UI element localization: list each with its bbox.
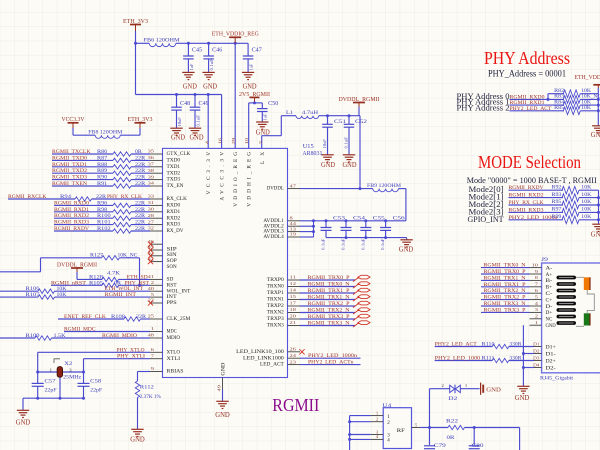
svg-text:C52: C52 [355, 119, 367, 125]
svg-text:NC: NC [546, 317, 553, 323]
svg-text:R98: R98 [97, 207, 108, 213]
svg-text:C54: C54 [353, 215, 365, 221]
svg-text:10K: 10K [581, 192, 591, 198]
svg-text:13: 13 [290, 226, 297, 231]
svg-text:11: 11 [290, 275, 297, 280]
svg-text:C53: C53 [333, 215, 345, 221]
svg-text:GND: GND [203, 82, 217, 90]
svg-text:RGMII_TRX0_P: RGMII_TRX0_P [484, 269, 526, 275]
svg-text:R85: R85 [554, 105, 564, 111]
svg-text:L1: L1 [286, 110, 293, 116]
svg-text:31: 31 [148, 200, 155, 205]
svg-text:RGMII_MDC: RGMII_MDC [64, 327, 96, 333]
svg-text:1.5K: 1.5K [54, 333, 66, 339]
svg-text:20: 20 [290, 314, 297, 319]
svg-text:DVDDL: DVDDL [267, 186, 284, 192]
svg-text:RGMII: RGMII [272, 395, 319, 415]
svg-text:GND: GND [16, 418, 31, 426]
svg-text:TRXP2: TRXP2 [267, 303, 284, 309]
svg-text:1uF: 1uF [189, 63, 194, 71]
svg-text:R102: R102 [97, 226, 111, 232]
svg-text:D1-: D1- [546, 351, 556, 357]
svg-text:R96: R96 [97, 200, 108, 206]
svg-text:PHY2_LED_1000: PHY2_LED_1000 [435, 356, 481, 362]
svg-text:10uF: 10uF [322, 139, 327, 149]
svg-text:25: 25 [148, 314, 155, 319]
svg-text:22pF: 22pF [45, 387, 57, 393]
svg-text:TRXN1: TRXN1 [267, 297, 284, 303]
svg-text:R108: R108 [111, 314, 125, 320]
svg-text:GND: GND [221, 362, 227, 375]
svg-text:R97: R97 [552, 207, 562, 213]
svg-text:44: 44 [290, 221, 297, 226]
svg-text:27: 27 [148, 219, 155, 224]
svg-text:22R: 22R [135, 181, 146, 187]
svg-text:32: 32 [148, 226, 155, 231]
svg-text:C56: C56 [393, 215, 405, 221]
svg-text:PHY Address 2: PHY Address 2 [457, 104, 510, 113]
svg-text:D4: D4 [533, 362, 540, 367]
svg-text:0R: 0R [135, 149, 142, 155]
svg-text:SON: SON [167, 264, 177, 270]
svg-text:47: 47 [290, 183, 297, 188]
svg-text:PHY2_LED_ACT: PHY2_LED_ACT [510, 106, 553, 112]
svg-text:RGMII_RXD3: RGMII_RXD3 [509, 207, 544, 213]
svg-text:23: 23 [290, 359, 297, 364]
svg-text:VDDIO_REG: VDDIO_REG [233, 152, 239, 207]
svg-text:C55: C55 [373, 215, 385, 221]
svg-text:RGMII_TRX1_N: RGMII_TRX1_N [484, 275, 526, 281]
svg-text:MDC: MDC [167, 329, 178, 335]
svg-text:25MHz: 25MHz [63, 374, 82, 380]
svg-text:10: 10 [532, 262, 539, 267]
svg-text:D1: D1 [533, 341, 540, 346]
svg-text:ETH_VDDIO_REG: ETH_VDDIO_REG [212, 31, 260, 37]
svg-text:TRXN2: TRXN2 [267, 310, 284, 316]
svg-text:GND: GND [171, 134, 185, 142]
svg-text:14: 14 [290, 288, 297, 293]
svg-text:22R: 22R [135, 207, 145, 213]
svg-text:C58: C58 [90, 378, 101, 384]
svg-text:R89: R89 [97, 168, 108, 174]
svg-text:RGMII_RXD2: RGMII_RXD2 [509, 193, 544, 199]
svg-text:B+: B+ [546, 285, 553, 291]
svg-text:16: 16 [217, 137, 222, 144]
svg-text:GND: GND [591, 230, 600, 238]
svg-text:GND: GND [546, 323, 556, 329]
svg-text:GND: GND [215, 411, 230, 419]
svg-text:36: 36 [148, 155, 155, 160]
svg-text:X2: X2 [64, 361, 72, 367]
svg-text:26: 26 [290, 347, 297, 352]
svg-text:RGMII_INT: RGMII_INT [105, 292, 137, 298]
svg-text:34: 34 [148, 181, 155, 186]
svg-text:RGMII_TRX2_P: RGMII_TRX2_P [484, 295, 526, 301]
svg-text:12: 12 [290, 281, 297, 286]
svg-text:R99: R99 [552, 214, 562, 220]
svg-text:R95: R95 [552, 199, 562, 205]
svg-text:R109: R109 [26, 333, 40, 339]
svg-text:MDIO: MDIO [167, 335, 181, 341]
svg-text:PPS: PPS [167, 300, 177, 306]
svg-text:RGMII_TRX3_P: RGMII_TRX3_P [484, 307, 526, 313]
svg-text:D2: D2 [448, 396, 457, 402]
svg-text:PHY_XTLO: PHY_XTLO [117, 347, 145, 353]
svg-text:1uF: 1uF [263, 113, 268, 121]
svg-text:PHY_RX_CLK: PHY_RX_CLK [509, 200, 544, 206]
svg-text:1uF: 1uF [249, 63, 254, 71]
svg-text:10K: 10K [581, 207, 591, 213]
svg-text:33: 33 [148, 194, 155, 199]
svg-text:18: 18 [290, 307, 297, 312]
svg-text:RXD1: RXD1 [167, 209, 181, 215]
svg-text:R93: R93 [552, 192, 562, 198]
svg-text:RGMII_TXD2: RGMII_TXD2 [52, 168, 87, 174]
svg-text:RXD2: RXD2 [167, 215, 181, 221]
svg-text:24: 24 [290, 353, 297, 358]
svg-text:RGMII_TXD0: RGMII_TXD0 [52, 155, 87, 161]
svg-text:22R: 22R [135, 155, 146, 161]
svg-text:R111: R111 [482, 356, 495, 362]
svg-text:39: 39 [148, 174, 155, 179]
svg-text:D2-: D2- [546, 365, 556, 371]
svg-text:41: 41 [148, 274, 155, 279]
svg-text:R112: R112 [140, 385, 154, 391]
svg-text:GND: GND [515, 394, 530, 402]
svg-text:C48: C48 [180, 100, 190, 107]
svg-text:10: 10 [244, 137, 249, 144]
svg-text:RGMII_TRX3_N: RGMII_TRX3_N [308, 321, 350, 327]
svg-text:RGMII_TRX2_N: RGMII_TRX2_N [308, 308, 350, 314]
svg-text:RXD3: RXD3 [167, 222, 181, 228]
svg-text:22R: 22R [135, 168, 146, 174]
svg-text:22R: 22R [96, 194, 106, 200]
svg-text:22R: 22R [135, 200, 145, 206]
svg-text:GND: GND [190, 134, 204, 142]
svg-text:GTX_CLK: GTX_CLK [167, 151, 191, 157]
svg-text:A-: A- [546, 265, 553, 271]
svg-text:15: 15 [290, 294, 297, 299]
svg-text:PHY2_LED_1000n: PHY2_LED_1000n [308, 353, 357, 359]
svg-text:RGMII_TRX0_N: RGMII_TRX0_N [308, 282, 350, 288]
svg-text:A+: A+ [546, 272, 553, 278]
svg-text:GND: GND [591, 131, 600, 139]
svg-text:RGMII_RXD0: RGMII_RXD0 [54, 200, 89, 206]
svg-text:22R: 22R [135, 175, 146, 181]
svg-text:10K_NC: 10K_NC [118, 253, 138, 259]
svg-text:TRXN3: TRXN3 [267, 323, 284, 329]
svg-text:22R: 22R [136, 314, 146, 320]
svg-text:330R: 330R [509, 356, 521, 362]
svg-text:R94: R94 [60, 194, 71, 200]
svg-text:0.1uF: 0.1uF [209, 58, 214, 70]
svg-text:LED_LINK10_100: LED_LINK10_100 [236, 349, 284, 355]
svg-text:CLK_25M: CLK_25M [167, 316, 191, 322]
svg-text:RGMII_TRX2_P: RGMII_TRX2_P [308, 301, 350, 307]
svg-text:R100: R100 [97, 213, 111, 219]
svg-text:35: 35 [148, 149, 155, 154]
svg-text:GND: GND [399, 245, 414, 253]
svg-text:RGMII_TXD1: RGMII_TXD1 [52, 162, 87, 168]
svg-text:RGMII_TRX1_P: RGMII_TRX1_P [484, 282, 526, 288]
svg-text:28: 28 [148, 213, 155, 218]
svg-text:10K: 10K [581, 184, 591, 190]
svg-text:29: 29 [231, 137, 236, 144]
svg-text:XTLO: XTLO [167, 349, 181, 355]
svg-text:C+: C+ [546, 297, 553, 303]
svg-text:0.1uF: 0.1uF [341, 238, 346, 250]
svg-text:D2+: D2+ [546, 358, 556, 364]
svg-text:GPIO_INT: GPIO_INT [468, 215, 504, 224]
svg-text:PHY2_LED_ACT: PHY2_LED_ACT [435, 342, 478, 348]
svg-text:FB8 120OHM: FB8 120OHM [88, 130, 122, 136]
svg-text:PHY2_LED_1000n: PHY2_LED_1000n [509, 215, 558, 221]
svg-text:RGMII_RXCLK: RGMII_RXCLK [8, 194, 47, 200]
svg-text:38: 38 [148, 168, 155, 173]
svg-text:RBIAS: RBIAS [167, 369, 184, 375]
svg-text:TXD3: TXD3 [167, 177, 181, 183]
svg-text:C47: C47 [252, 47, 263, 54]
svg-text:D-: D- [546, 304, 553, 310]
svg-text:RGMII_RXD3: RGMII_RXD3 [54, 220, 89, 226]
svg-text:RGMII_TRX2_N: RGMII_TRX2_N [484, 288, 526, 294]
svg-text:RGMII_MDIO: RGMII_MDIO [102, 333, 137, 339]
svg-text:TXD2: TXD2 [167, 170, 181, 176]
svg-text:ETH_VDDIO_REG: ETH_VDDIO_REG [575, 75, 600, 81]
svg-text:0.1uF: 0.1uF [360, 238, 365, 250]
svg-text:R22: R22 [446, 419, 458, 425]
svg-text:LED_LINK1000: LED_LINK1000 [243, 355, 284, 361]
svg-text:XTLI: XTLI [167, 356, 181, 362]
svg-text:GND: GND [321, 161, 335, 169]
svg-text:GND: GND [243, 82, 257, 90]
svg-text:MODE Selection: MODE Selection [478, 152, 581, 172]
svg-text:330R: 330R [509, 342, 521, 348]
svg-text:RF: RF [397, 428, 405, 434]
svg-text:17: 17 [290, 301, 297, 306]
svg-text:30: 30 [148, 207, 155, 212]
svg-text:GND: GND [130, 435, 145, 443]
svg-text:B-: B- [546, 278, 553, 284]
svg-text:C80: C80 [472, 443, 484, 449]
svg-text:RJ45_Gigabit: RJ45_Gigabit [540, 376, 574, 382]
svg-text:R127: R127 [90, 253, 103, 259]
svg-text:10K: 10K [57, 292, 67, 298]
svg-text:RXD0: RXD0 [167, 203, 181, 209]
svg-text:R110: R110 [482, 342, 495, 348]
svg-text:AVDDL4: AVDDL4 [263, 234, 284, 240]
svg-text:PHY_Address = 00001: PHY_Address = 00001 [488, 68, 566, 78]
svg-text:PHY_RX_CLK: PHY_RX_CLK [107, 194, 142, 200]
svg-text:21: 21 [290, 320, 297, 325]
svg-text:C57: C57 [45, 378, 56, 384]
svg-text:FB9 120OHM: FB9 120OHM [367, 183, 401, 189]
svg-text:RGMII_RXD1: RGMII_RXD1 [54, 207, 89, 213]
svg-text:22R: 22R [135, 220, 145, 226]
svg-text:RGMII_TRX1_P: RGMII_TRX1_P [308, 288, 350, 294]
svg-text:C45: C45 [192, 47, 202, 54]
svg-text:RGMII_TRX1_N: RGMII_TRX1_N [308, 295, 350, 301]
svg-text:22R: 22R [135, 213, 145, 219]
svg-text:R105: R105 [89, 280, 103, 286]
svg-text:TRXP3: TRXP3 [267, 316, 284, 322]
svg-text:0R: 0R [447, 435, 456, 441]
svg-text:4.7uH: 4.7uH [302, 110, 318, 116]
svg-text:FB6 120OHM: FB6 120OHM [144, 38, 180, 44]
svg-text:U15: U15 [303, 143, 314, 150]
svg-text:0.1uF: 0.1uF [321, 238, 326, 250]
svg-text:TX_EN: TX_EN [167, 183, 184, 189]
svg-text:TXD1: TXD1 [167, 164, 181, 170]
svg-text:RGMII_TRX3_P: RGMII_TRX3_P [308, 314, 350, 320]
svg-text:0.1uF: 0.1uF [380, 238, 385, 250]
svg-text:R87: R87 [97, 155, 108, 161]
svg-text:ENET_REF_CLK: ENET_REF_CLK [64, 314, 106, 320]
svg-text:1: 1 [50, 367, 52, 372]
svg-text:AR8031: AR8031 [302, 150, 322, 157]
svg-text:2.37K 1%: 2.37K 1% [140, 394, 161, 400]
svg-text:R88: R88 [97, 162, 108, 168]
svg-text:4.7K: 4.7K [107, 271, 120, 277]
svg-text:40: 40 [148, 286, 155, 291]
svg-text:PHY Address: PHY Address [484, 48, 570, 68]
svg-text:D+: D+ [546, 310, 553, 316]
svg-text:GND: GND [343, 161, 357, 169]
svg-text:LED_ACT: LED_ACT [260, 362, 284, 368]
svg-text:10K: 10K [581, 105, 591, 111]
svg-text:R92: R92 [552, 184, 562, 190]
svg-text:VDDHI_REG: VDDHI_REG [247, 152, 253, 207]
svg-text:PHY2_LED_ACTn: PHY2_LED_ACTn [308, 360, 354, 366]
svg-text:C-: C- [546, 291, 553, 297]
svg-text:RX_CLK: RX_CLK [167, 196, 188, 202]
svg-text:10uF: 10uF [177, 117, 182, 127]
svg-text:R91: R91 [97, 181, 108, 187]
svg-text:RGMII_TXD3: RGMII_TXD3 [52, 175, 87, 181]
svg-text:RGMII_TRX3_N: RGMII_TRX3_N [484, 301, 526, 307]
svg-text:R107: R107 [26, 292, 40, 298]
svg-text:RX_DV: RX_DV [167, 228, 184, 234]
svg-text:49: 49 [216, 384, 221, 391]
svg-text:C51: C51 [334, 119, 346, 125]
svg-text:U4: U4 [382, 403, 391, 409]
svg-text:TRXP1: TRXP1 [267, 290, 284, 296]
svg-text:48: 48 [148, 333, 155, 338]
svg-text:D1+: D1+ [546, 344, 556, 350]
svg-text:0.1uF: 0.1uF [195, 114, 200, 126]
svg-text:22pF: 22pF [90, 387, 102, 393]
svg-text:RGMII_RXDV: RGMII_RXDV [509, 185, 544, 191]
svg-text:TXD0: TXD0 [167, 158, 181, 164]
svg-text:RGMII_RXD2: RGMII_RXD2 [54, 213, 89, 219]
svg-text:C49: C49 [199, 100, 209, 107]
svg-text:C79: C79 [434, 443, 446, 449]
svg-text:C46: C46 [212, 47, 223, 54]
svg-text:D3: D3 [533, 355, 540, 360]
svg-text:22R: 22R [135, 162, 146, 168]
svg-text:J9: J9 [541, 257, 548, 263]
svg-text:RGMII_TRX0_P: RGMII_TRX0_P [308, 275, 350, 281]
svg-text:TRXP0: TRXP0 [267, 277, 284, 283]
svg-text:R86: R86 [97, 149, 108, 155]
svg-text:Mode "0000" = 1000 BASE-T , RG: Mode "0000" = 1000 BASE-T , RGMII [467, 175, 597, 185]
svg-text:R90: R90 [97, 175, 108, 181]
svg-text:GND: GND [183, 82, 197, 90]
svg-text:D2: D2 [533, 348, 540, 353]
svg-text:C50: C50 [268, 100, 278, 107]
svg-text:10K: 10K [581, 214, 591, 220]
svg-text:19: 19 [290, 232, 297, 237]
svg-text:R101: R101 [97, 220, 111, 226]
svg-text:GND: GND [486, 387, 501, 394]
svg-text:10K: 10K [581, 199, 591, 205]
svg-text:RGMII_TRX0_N: RGMII_TRX0_N [484, 263, 526, 269]
svg-text:RGMII_TXEN: RGMII_TXEN [52, 181, 87, 187]
svg-text:PHY_XTLI: PHY_XTLI [117, 354, 145, 360]
svg-text:RGMII_TXCLK: RGMII_TXCLK [52, 149, 91, 155]
svg-text:37: 37 [148, 162, 155, 167]
svg-text:RGMII_RXDV: RGMII_RXDV [54, 226, 89, 232]
svg-text:TRXN0: TRXN0 [267, 284, 284, 290]
svg-text:0.1uF: 0.1uF [344, 136, 349, 148]
svg-text:22R: 22R [135, 226, 145, 232]
svg-text:3: 3 [69, 367, 71, 372]
